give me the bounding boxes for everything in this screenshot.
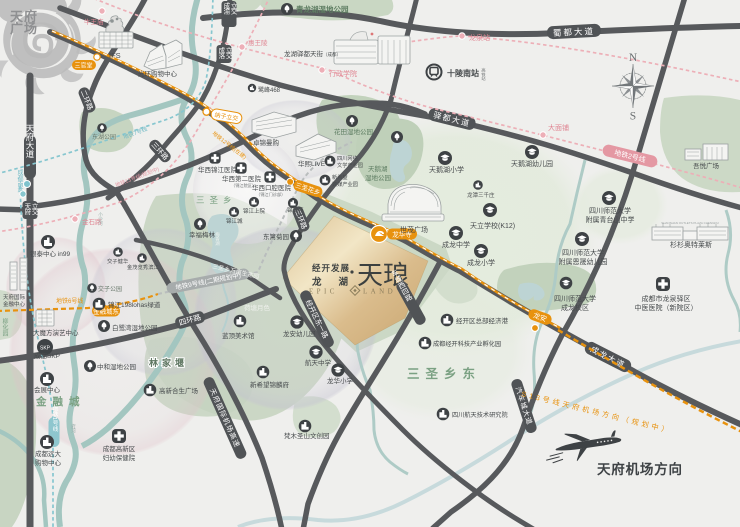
svg-text:天鹅湖幼儿园: 天鹅湖幼儿园 xyxy=(511,159,553,168)
svg-text:银泰中心 in99: 银泰中心 in99 xyxy=(30,249,70,258)
svg-text:惠王陵: 惠王陵 xyxy=(248,38,268,47)
svg-text:SKP: SKP xyxy=(40,346,51,352)
svg-text:中医医院（新院区）: 中医医院（新院区） xyxy=(635,303,698,312)
svg-text:华西第二医院: 华西第二医院 xyxy=(222,174,262,183)
svg-text:成龙校区: 成龙校区 xyxy=(561,303,589,312)
svg-text:东湖公园: 东湖公园 xyxy=(92,133,116,141)
svg-text:N: N xyxy=(629,52,638,64)
svg-text:锦江上院: 锦江上院 xyxy=(243,207,266,215)
svg-text:成都南站: 成都南站 xyxy=(16,168,23,194)
svg-text:航天中学: 航天中学 xyxy=(305,358,332,367)
svg-text:（锦江门诊部）: （锦江门诊部） xyxy=(256,191,285,198)
svg-text:成都高新区: 成都高新区 xyxy=(103,444,136,453)
svg-text:花田湿地公园: 花田湿地公园 xyxy=(334,127,373,136)
svg-text:天鹅湖: 天鹅湖 xyxy=(368,164,388,173)
svg-text:东篱菊园: 东篱菊园 xyxy=(263,232,289,241)
svg-text:IFS: IFS xyxy=(109,51,121,60)
svg-text:华西口腔医院: 华西口腔医院 xyxy=(252,183,292,192)
svg-text:锦江198lohas绿道: 锦江198lohas绿道 xyxy=(108,300,161,309)
svg-text:高新合生广场: 高新合生广场 xyxy=(159,386,199,395)
svg-text:天府大道: 天府大道 xyxy=(25,124,35,159)
svg-text:大魔方演艺中心: 大魔方演艺中心 xyxy=(33,328,79,337)
svg-text:金融城: 金融城 xyxy=(35,395,86,408)
svg-text:经开区总部经济港: 经开区总部经济港 xyxy=(456,316,509,325)
svg-text:成龙小学: 成龙小学 xyxy=(467,258,495,267)
svg-text:地铁6号线: 地铁6号线 xyxy=(56,297,83,305)
svg-text:四川师范大学: 四川师范大学 xyxy=(554,294,596,303)
svg-text:EPIC: EPIC xyxy=(309,288,338,296)
svg-text:林家堰: 林家堰 xyxy=(149,357,188,368)
svg-text:幸福梅林: 幸福梅林 xyxy=(189,230,216,239)
svg-text:数媒产业园: 数媒产业园 xyxy=(332,180,358,188)
svg-text:购物中心: 购物中心 xyxy=(35,458,62,467)
svg-text:锦鹭苑: 锦鹭苑 xyxy=(287,206,304,214)
svg-text:成龙中学: 成龙中学 xyxy=(442,240,470,249)
svg-text:成都SKP: 成都SKP xyxy=(34,351,60,360)
svg-text:高铁站: 高铁站 xyxy=(481,67,487,82)
svg-text:华西锦江医院: 华西锦江医院 xyxy=(198,165,238,174)
svg-text:会展中心: 会展中心 xyxy=(34,385,61,394)
svg-text:附属恩晟幼儿园: 附属恩晟幼儿园 xyxy=(559,257,608,266)
svg-text:柳化园: 柳化园 xyxy=(1,317,8,337)
svg-text:府河: 府河 xyxy=(71,423,77,434)
svg-text:华熙LIVE: 华熙LIVE xyxy=(298,159,326,168)
svg-text:蓝顶美术馆: 蓝顶美术馆 xyxy=(222,331,255,340)
svg-text:天立学校(K12): 天立学校(K12) xyxy=(470,221,515,230)
svg-text:大面铺: 大面铺 xyxy=(548,123,569,132)
svg-text:白鹭湾湿地公园: 白鹭湾湿地公园 xyxy=(112,323,158,332)
svg-text:附属青台山中学: 附属青台山中学 xyxy=(586,215,635,224)
svg-text:湿地公园: 湿地公园 xyxy=(365,173,391,182)
svg-text:小沙河: 小沙河 xyxy=(98,211,104,226)
svg-text:十陵南站: 十陵南站 xyxy=(447,68,479,78)
svg-text:天鹅湖小学: 天鹅湖小学 xyxy=(429,165,464,174)
svg-text:广场: 广场 xyxy=(10,21,38,36)
svg-text:梵木圣山文创园: 梵木圣山文创园 xyxy=(284,431,330,440)
svg-text:天府机场方向: 天府机场方向 xyxy=(597,461,683,477)
svg-text:金融中心: 金融中心 xyxy=(3,300,26,308)
svg-text:中和湿地公园: 中和湿地公园 xyxy=(97,362,136,371)
svg-text:交子公园: 交子公园 xyxy=(98,285,122,293)
svg-text:文学产业园: 文学产业园 xyxy=(337,161,363,169)
svg-text:三圣乡: 三圣乡 xyxy=(196,195,237,205)
svg-text:行政学院: 行政学院 xyxy=(329,69,357,78)
svg-text:金茂览秀滨江: 金茂览秀滨江 xyxy=(127,263,159,271)
svg-text:四川网络: 四川网络 xyxy=(337,154,358,162)
svg-text:妇幼保健院: 妇幼保健院 xyxy=(103,453,136,462)
svg-text:荷塘月色: 荷塘月色 xyxy=(244,303,271,312)
svg-text:成都远大: 成都远大 xyxy=(35,449,62,458)
svg-text:龙潭三千庄: 龙潭三千庄 xyxy=(467,191,495,199)
svg-text:吾悦广场: 吾悦广场 xyxy=(693,161,720,170)
svg-text:S: S xyxy=(630,111,636,123)
svg-text:梅香湖: 梅香湖 xyxy=(215,231,221,247)
svg-text:锦江城: 锦江城 xyxy=(226,217,243,225)
svg-text:鹭峰468: 鹭峰468 xyxy=(258,86,281,94)
svg-text:经开发展: 经开发展 xyxy=(312,263,350,273)
svg-text:交子健华: 交子健华 xyxy=(107,257,129,265)
svg-text:LAND: LAND xyxy=(363,288,396,296)
svg-text:光环购物中心: 光环购物中心 xyxy=(138,69,178,78)
svg-text:地铁1号线: 地铁1号线 xyxy=(51,404,58,432)
svg-text:杉杉奥特莱斯: 杉杉奥特莱斯 xyxy=(670,240,712,249)
svg-text:三圣乡东: 三圣乡东 xyxy=(407,366,481,381)
svg-text:新希望锦麟府: 新希望锦麟府 xyxy=(250,380,290,389)
svg-text:龙安幼儿园: 龙安幼儿园 xyxy=(283,329,316,338)
svg-text:SHANSHAN OUTLETS PLAZA CHENGDU: SHANSHAN OUTLETS PLAZA CHENGDU xyxy=(661,221,719,225)
svg-text:世茂广场: 世茂广场 xyxy=(400,225,428,234)
svg-text:天府国际: 天府国际 xyxy=(3,293,26,301)
svg-text:卓锦曼购: 卓锦曼购 xyxy=(253,138,280,147)
svg-text:四川航天技术研究院: 四川航天技术研究院 xyxy=(452,411,508,419)
svg-text:成都经开科技产业孵化园: 成都经开科技产业孵化园 xyxy=(433,340,501,348)
svg-text:四川师范大学: 四川师范大学 xyxy=(562,248,604,257)
svg-text:三官堂: 三官堂 xyxy=(75,62,93,70)
svg-text:成都市龙泉驿区: 成都市龙泉驿区 xyxy=(642,294,691,303)
svg-text:龙华小学: 龙华小学 xyxy=(327,376,354,385)
svg-text:青龙湖湿地公园: 青龙湖湿地公园 xyxy=(296,4,349,14)
svg-text:新希望: 新希望 xyxy=(332,173,348,181)
svg-text:四川师范大学: 四川师范大学 xyxy=(589,206,631,215)
svg-text:龙泉站: 龙泉站 xyxy=(469,33,490,42)
svg-text:牛王庙: 牛王庙 xyxy=(84,17,104,26)
